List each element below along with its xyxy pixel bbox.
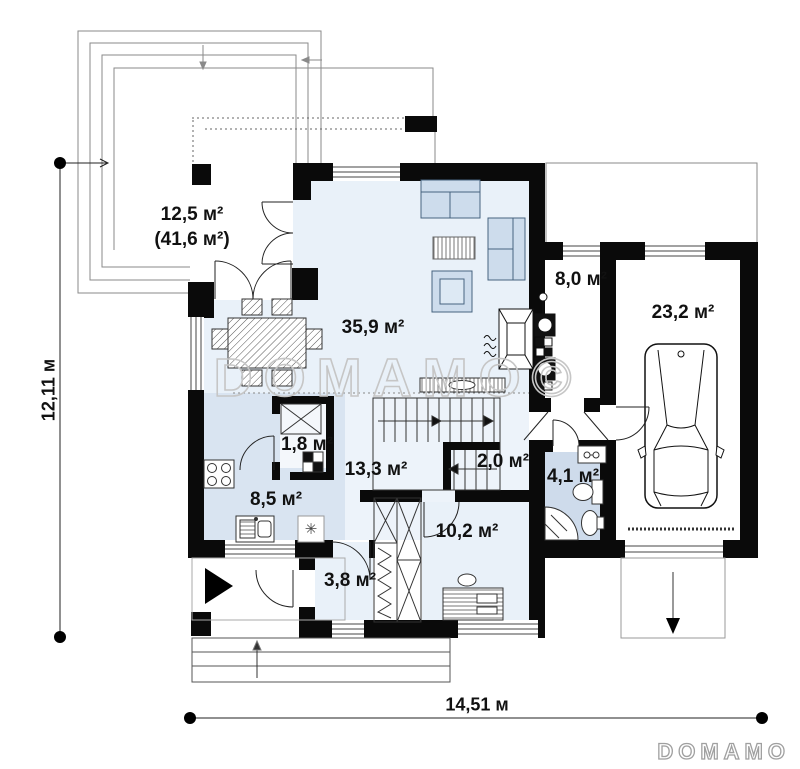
- label-height-dimension: 12,11 м: [39, 359, 60, 421]
- driveway: [621, 558, 725, 638]
- chair: [212, 329, 228, 349]
- garage-roof-outline: [546, 163, 757, 243]
- label-hall: 13,3 м²: [345, 459, 408, 481]
- label-cabinet: 10,2 м²: [436, 521, 499, 543]
- steps-up-arrow-icon: [253, 641, 261, 650]
- label-vestibule: 3,8 м²: [324, 570, 376, 592]
- brand-logo: DOMAMO: [657, 739, 790, 765]
- kitchen-sink: [236, 516, 274, 542]
- label-bathroom: 4,1 м²: [547, 466, 599, 488]
- label-garage: 23,2 м²: [652, 302, 715, 324]
- snowflake-icon: ✳: [305, 520, 318, 538]
- coat-rail-zigzag: [378, 548, 391, 618]
- sofa-top: [421, 180, 480, 218]
- label-boiler-room: 8,0 м²: [555, 269, 607, 291]
- chair: [242, 370, 262, 386]
- chair: [272, 370, 292, 386]
- tv-stand: [420, 378, 505, 392]
- label-living-room: 35,9 м²: [342, 317, 405, 339]
- label-kitchen: 8,5 м²: [250, 489, 302, 511]
- sofa-side: [488, 218, 525, 280]
- desk-chair: [458, 574, 476, 586]
- car: [638, 344, 724, 508]
- floor-plan-page: 12,5 м² (41,6 м²) 35,9 м² 8,0 м² 23,2 м²…: [0, 0, 800, 769]
- floor-plan-drawing: [0, 0, 800, 769]
- label-terrace-area: 12,5 м²: [161, 204, 224, 226]
- upper-floor-projection: [192, 118, 405, 162]
- label-width-dimension: 14,51 м: [445, 695, 508, 716]
- chair: [272, 299, 292, 315]
- armchair: [432, 271, 472, 312]
- chair: [306, 329, 322, 349]
- rug: [433, 237, 475, 259]
- washbasin: [582, 511, 599, 536]
- driveway-arrow-icon: [666, 618, 680, 634]
- label-terrace-total: (41,6 м²): [154, 229, 229, 251]
- chair: [242, 299, 262, 315]
- label-pantry: 1,8 м²: [281, 434, 333, 456]
- garage-gate: [625, 540, 723, 558]
- label-stairs: 2,0 м²: [477, 451, 529, 473]
- stove: [204, 460, 234, 488]
